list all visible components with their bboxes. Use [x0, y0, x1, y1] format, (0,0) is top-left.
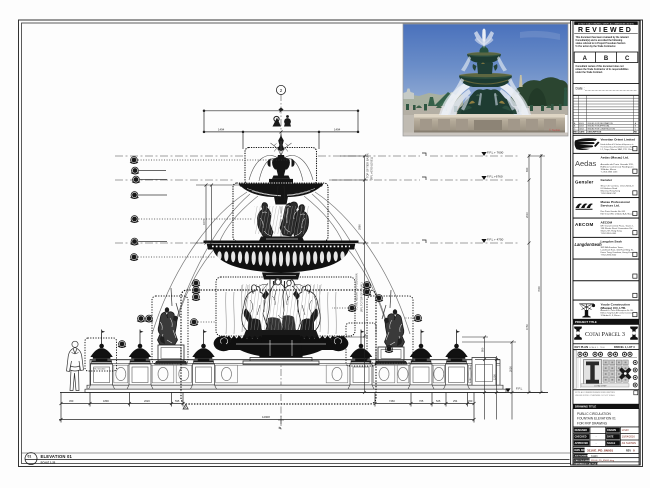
svg-text:B: B [604, 56, 609, 62]
svg-text:2860: 2860 [358, 224, 362, 230]
svg-text:CAD FILE NAME: CAD FILE NAME [574, 459, 591, 462]
svg-text:LVHO: LVHO [622, 428, 629, 432]
svg-text:NOTE: ALL DIMENSIONS ARE IN MI: NOTE: ALL DIMENSIONS ARE IN MILLIMETRES [575, 391, 616, 394]
svg-text:REV: REV [574, 132, 579, 134]
svg-text:Aedas: Aedas [575, 159, 597, 168]
svg-text:254: 254 [453, 399, 458, 403]
svg-text:DWG NO: DWG NO [574, 449, 584, 452]
svg-text:DATE: DATE [607, 436, 614, 439]
svg-text:Date :: Date : [576, 87, 585, 91]
svg-text:311UE_PD_8N001: 311UE_PD_8N001 [587, 449, 613, 453]
svg-text:T 852.2866.5747: T 852.2866.5747 [601, 193, 618, 195]
svg-text:-: - [596, 436, 597, 439]
svg-text:AECOM: AECOM [575, 222, 594, 227]
svg-text:AS SHOWN: AS SHOWN [622, 441, 636, 445]
svg-text:Consultant review of this docu: Consultant review of this document does … [576, 65, 624, 68]
svg-text:SCALE 1:25: SCALE 1:25 [41, 460, 56, 464]
svg-text:4750: 4750 [525, 324, 529, 330]
svg-text:DATE: DATE [579, 131, 585, 134]
svg-text:UNLESS NOTED OTHERWISE. DO NOT: UNLESS NOTED OTHERWISE. DO NOT SCALE. [575, 394, 616, 397]
svg-text:(FFL TO TOP OF FINIAL): (FFL TO TOP OF FINIAL) [360, 282, 364, 312]
svg-text:7460: 7460 [389, 399, 395, 403]
svg-text:890: 890 [480, 347, 484, 352]
svg-text:1890: 1890 [103, 399, 109, 403]
svg-text:CHECKED: CHECKED [575, 436, 587, 439]
svg-text:595: 595 [175, 399, 180, 403]
svg-text:TOP OF TIER BASIN: TOP OF TIER BASIN [366, 153, 370, 178]
svg-text:2050: 2050 [508, 366, 512, 372]
svg-text:FOUNTAIN ELEVATION 01: FOUNTAIN ELEVATION 01 [577, 417, 616, 421]
svg-text:10/04/2016: 10/04/2016 [622, 435, 636, 439]
svg-text:Consultant(s) and is accorded: Consultant(s) and is accorded the follow… [576, 39, 623, 42]
svg-text:relieve the Trade Contractor o: relieve the Trade Contractor of its resp… [576, 68, 630, 71]
svg-text:PARCEL 1, LOT 3: PARCEL 1, LOT 3 [614, 346, 635, 349]
svg-text:01: 01 [28, 455, 32, 459]
svg-text:SCALE: SCALE [607, 442, 616, 445]
svg-text:2020: 2020 [144, 399, 150, 403]
svg-text:COTAI PARCEL 3: COTAI PARCEL 3 [585, 331, 625, 338]
svg-text:F.F.L: F.F.L [516, 386, 523, 390]
svg-text:(FFL +6760 LEVEL): (FFL +6760 LEVEL) [370, 157, 374, 180]
svg-text:SCALE 1 : 7500: SCALE 1 : 7500 [589, 346, 605, 349]
svg-text:This document has been reviewe: This document has been reviewed by the r… [576, 36, 629, 39]
svg-text:12908: 12908 [262, 415, 270, 419]
svg-text:Venetian Orient Limited: Venetian Orient Limited [601, 138, 636, 142]
svg-text:DESIGNED: DESIGNED [575, 429, 588, 432]
svg-text:© Topfoto: © Topfoto [549, 128, 561, 132]
svg-text:DRAWN: DRAWN [607, 429, 616, 432]
svg-text:840: 840 [525, 167, 529, 172]
svg-text:450: 450 [468, 399, 473, 403]
svg-text:ISSUED FOR INFORMATION: ISSUED FOR INFORMATION [588, 122, 614, 125]
svg-text:TOTAL HEIGHT OF FOUNTAIN: TOTAL HEIGHT OF FOUNTAIN [355, 273, 359, 310]
svg-text:APPROVED: APPROVED [575, 442, 589, 445]
svg-text:PUBLIC CIRCULATION: PUBLIC CIRCULATION [577, 412, 611, 416]
svg-text:765: 765 [419, 399, 424, 403]
svg-text:1494: 1494 [218, 128, 225, 132]
svg-text:JOB NUMBER: JOB NUMBER [574, 456, 588, 458]
svg-text:DRAWING TITLE: DRAWING TITLE [575, 405, 596, 409]
svg-text:DESCRIPTION: DESCRIPTION [588, 132, 602, 134]
svg-text:450: 450 [69, 399, 74, 403]
svg-text:REVIEWED: REVIEWED [578, 27, 633, 34]
svg-text:TBC 600x600: TBC 600x600 [93, 369, 106, 371]
svg-text:2010: 2010 [525, 212, 529, 218]
svg-text:05/03: 05/03 [579, 123, 584, 125]
svg-text:-: - [596, 442, 597, 445]
svg-text:F.F.L +6760: F.F.L +6760 [487, 175, 503, 179]
svg-text:under the Trade Contract.: under the Trade Contract. [576, 71, 604, 74]
svg-text:DO NOT SCALE DRAWING. VERIFY A: DO NOT SCALE DRAWING. VERIFY ALL DIMENSI… [578, 22, 635, 25]
svg-text:7600: 7600 [537, 286, 541, 292]
svg-text:1200: 1200 [492, 374, 496, 380]
svg-text:ISSUED FOR CONSTRUCTION: ISSUED FOR CONSTRUCTION [588, 129, 616, 131]
svg-text:22/03: 22/03 [579, 126, 584, 128]
svg-text:ELEVATION 01: ELEVATION 01 [41, 454, 73, 459]
svg-text:T 852.2830.3500: T 852.2830.3500 [601, 255, 618, 257]
svg-text:Gensler: Gensler [601, 178, 613, 182]
svg-text:Aedas (Macau) Ltd.: Aedas (Macau) Ltd. [601, 156, 630, 160]
svg-text:REV: REV [626, 449, 631, 452]
svg-text:525: 525 [436, 399, 441, 403]
svg-text:REFERENCE CAD FILE NAME: REFERENCE CAD FILE NAME [574, 462, 603, 465]
svg-text:LangdonSeah: LangdonSeah [575, 242, 603, 247]
svg-text:T +853 2833 1133: T +853 2833 1133 [601, 171, 619, 173]
svg-text:COTAI STRIP: COTAI STRIP [594, 385, 607, 388]
svg-text:Langdon Seah: Langdon Seah [601, 240, 622, 244]
svg-text:FOR FRP DRAWING: FOR FRP DRAWING [577, 421, 608, 425]
svg-text:A: A [184, 405, 186, 409]
svg-text:L2, Taipa, Macau SAR, P.R. Chi: L2, Taipa, Macau SAR, P.R. China [601, 148, 635, 151]
svg-text:F.F.L + 4750: F.F.L + 4750 [487, 238, 504, 242]
svg-text:31103: 31103 [591, 455, 598, 458]
svg-text:1494: 1494 [334, 128, 341, 132]
svg-text:status referred to in Projec: status referred to in Project Procedure … [576, 42, 627, 45]
svg-text:12 Andar E, F, Macau: 12 Andar E, F, Macau [601, 314, 622, 317]
svg-text:KEY PLAN: KEY PLAN [575, 345, 589, 349]
svg-text:1675: 1675 [202, 219, 206, 225]
svg-text:Services Ltd.: Services Ltd. [601, 203, 620, 207]
svg-text:F.F.L + 7600: F.F.L + 7600 [487, 151, 504, 155]
svg-text:T 852.2891.0305: T 852.2891.0305 [601, 233, 618, 235]
svg-text:ISSUED FOR APPROVAL: ISSUED FOR APPROVAL [588, 125, 610, 128]
svg-text:A: A [583, 56, 588, 62]
svg-text:PROJECT TITLE: PROJECT TITLE [575, 320, 597, 324]
svg-text:AECOM: AECOM [601, 220, 613, 224]
svg-text:10/04: 10/04 [579, 129, 584, 131]
svg-text:C: C [625, 56, 630, 62]
svg-text:Edf. Great Will, 12 Andar A-B,: Edf. Great Will, 12 Andar A-B, Macau [601, 213, 635, 216]
svg-text:Gensler: Gensler [575, 180, 594, 185]
svg-text:5.4 for action by the Trade Co: 5.4 for action by the Trade Contractor. [576, 45, 617, 48]
